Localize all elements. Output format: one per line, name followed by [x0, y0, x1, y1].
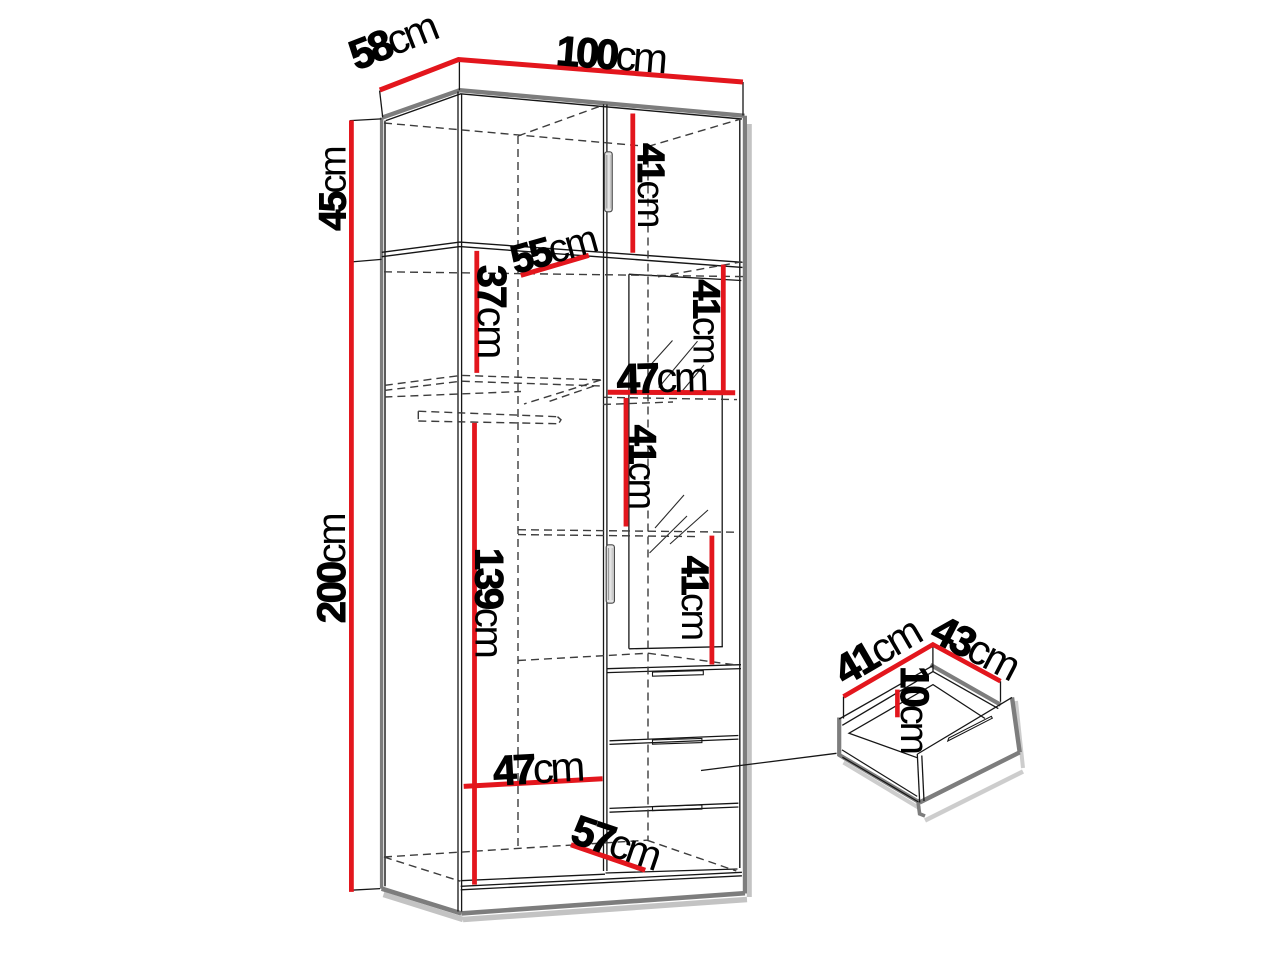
svg-text:45cm: 45cm [312, 147, 354, 231]
svg-text:10cm: 10cm [892, 666, 936, 753]
svg-text:200cm: 200cm [310, 515, 354, 624]
svg-text:47cm: 47cm [492, 742, 585, 794]
svg-text:41cm: 41cm [629, 143, 671, 227]
svg-text:47cm: 47cm [616, 353, 707, 402]
svg-text:41cm: 41cm [620, 425, 662, 509]
svg-text:41cm: 41cm [673, 556, 715, 640]
svg-text:37cm: 37cm [469, 265, 515, 357]
svg-text:100cm: 100cm [555, 26, 668, 81]
svg-text:139cm: 139cm [467, 548, 511, 657]
svg-text:41cm: 41cm [685, 279, 727, 363]
